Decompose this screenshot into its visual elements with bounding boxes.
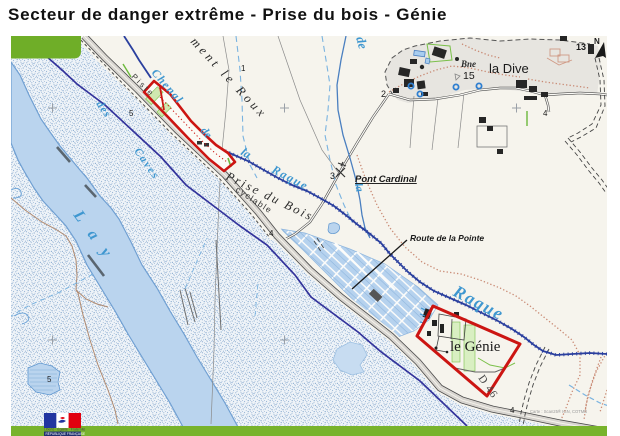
svg-text:4: 4 (269, 229, 274, 238)
svg-text:N: N (594, 37, 600, 46)
svg-text:RÉPUBLIQUE FRANÇAISE: RÉPUBLIQUE FRANÇAISE (46, 431, 86, 436)
svg-text:4: 4 (543, 109, 548, 118)
svg-text:la Dive: la Dive (489, 61, 529, 76)
svg-text:15: 15 (463, 70, 475, 82)
svg-text:le Génie: le Génie (450, 339, 501, 355)
svg-text:3: 3 (330, 171, 335, 181)
svg-text:Pont Cardinal: Pont Cardinal (355, 174, 417, 185)
svg-text:Carte : Scan25® IGN, COTMB: Carte : Scan25® IGN, COTMB (530, 409, 587, 414)
svg-text:5: 5 (129, 109, 134, 118)
svg-text:4: 4 (510, 406, 515, 415)
svg-text:Liberté · Égalité · Fraternité: Liberté · Égalité · Fraternité (44, 427, 85, 432)
svg-text:Route de la Pointe: Route de la Pointe (410, 233, 484, 243)
svg-text:5: 5 (47, 375, 52, 384)
svg-text:13: 13 (576, 42, 586, 52)
svg-text:2: 2 (381, 89, 386, 99)
svg-text:1: 1 (241, 64, 246, 73)
svg-text:Bne: Bne (460, 59, 476, 69)
